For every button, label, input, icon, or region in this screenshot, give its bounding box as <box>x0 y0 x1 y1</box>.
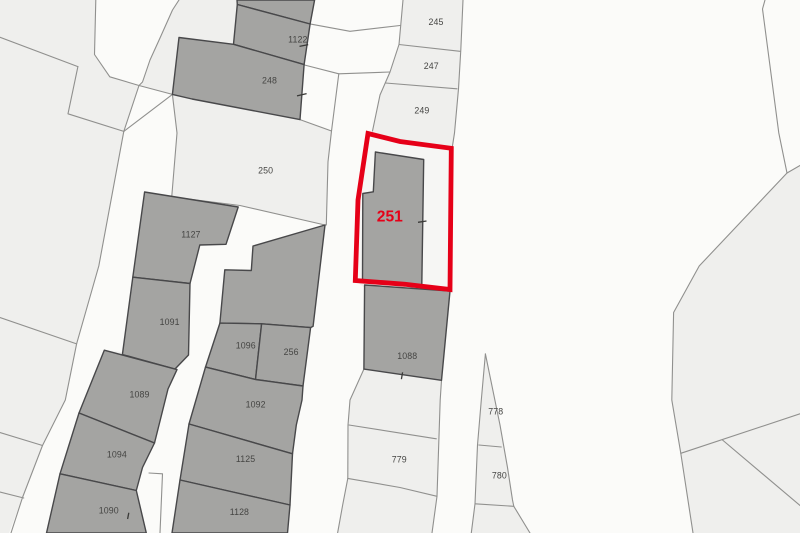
svg-text:250: 250 <box>258 165 273 175</box>
svg-text:1125: 1125 <box>236 454 255 464</box>
svg-text:779: 779 <box>392 454 407 464</box>
svg-text:1094: 1094 <box>107 449 127 459</box>
svg-text:1088: 1088 <box>397 351 417 361</box>
svg-text:780: 780 <box>492 471 507 481</box>
svg-text:1127: 1127 <box>181 230 200 240</box>
svg-text:1096: 1096 <box>236 341 256 351</box>
svg-text:249: 249 <box>414 106 429 116</box>
svg-text:248: 248 <box>262 76 277 86</box>
svg-text:1122: 1122 <box>288 35 307 45</box>
svg-text:247: 247 <box>424 61 439 71</box>
svg-text:251: 251 <box>377 209 403 226</box>
svg-text:1092: 1092 <box>246 400 266 410</box>
svg-text:256: 256 <box>284 347 299 357</box>
svg-text:778: 778 <box>488 406 503 416</box>
svg-text:245: 245 <box>429 17 444 27</box>
svg-text:1128: 1128 <box>230 507 249 517</box>
svg-text:1089: 1089 <box>130 390 150 400</box>
svg-text:1091: 1091 <box>160 317 180 327</box>
svg-text:1090: 1090 <box>99 506 119 516</box>
